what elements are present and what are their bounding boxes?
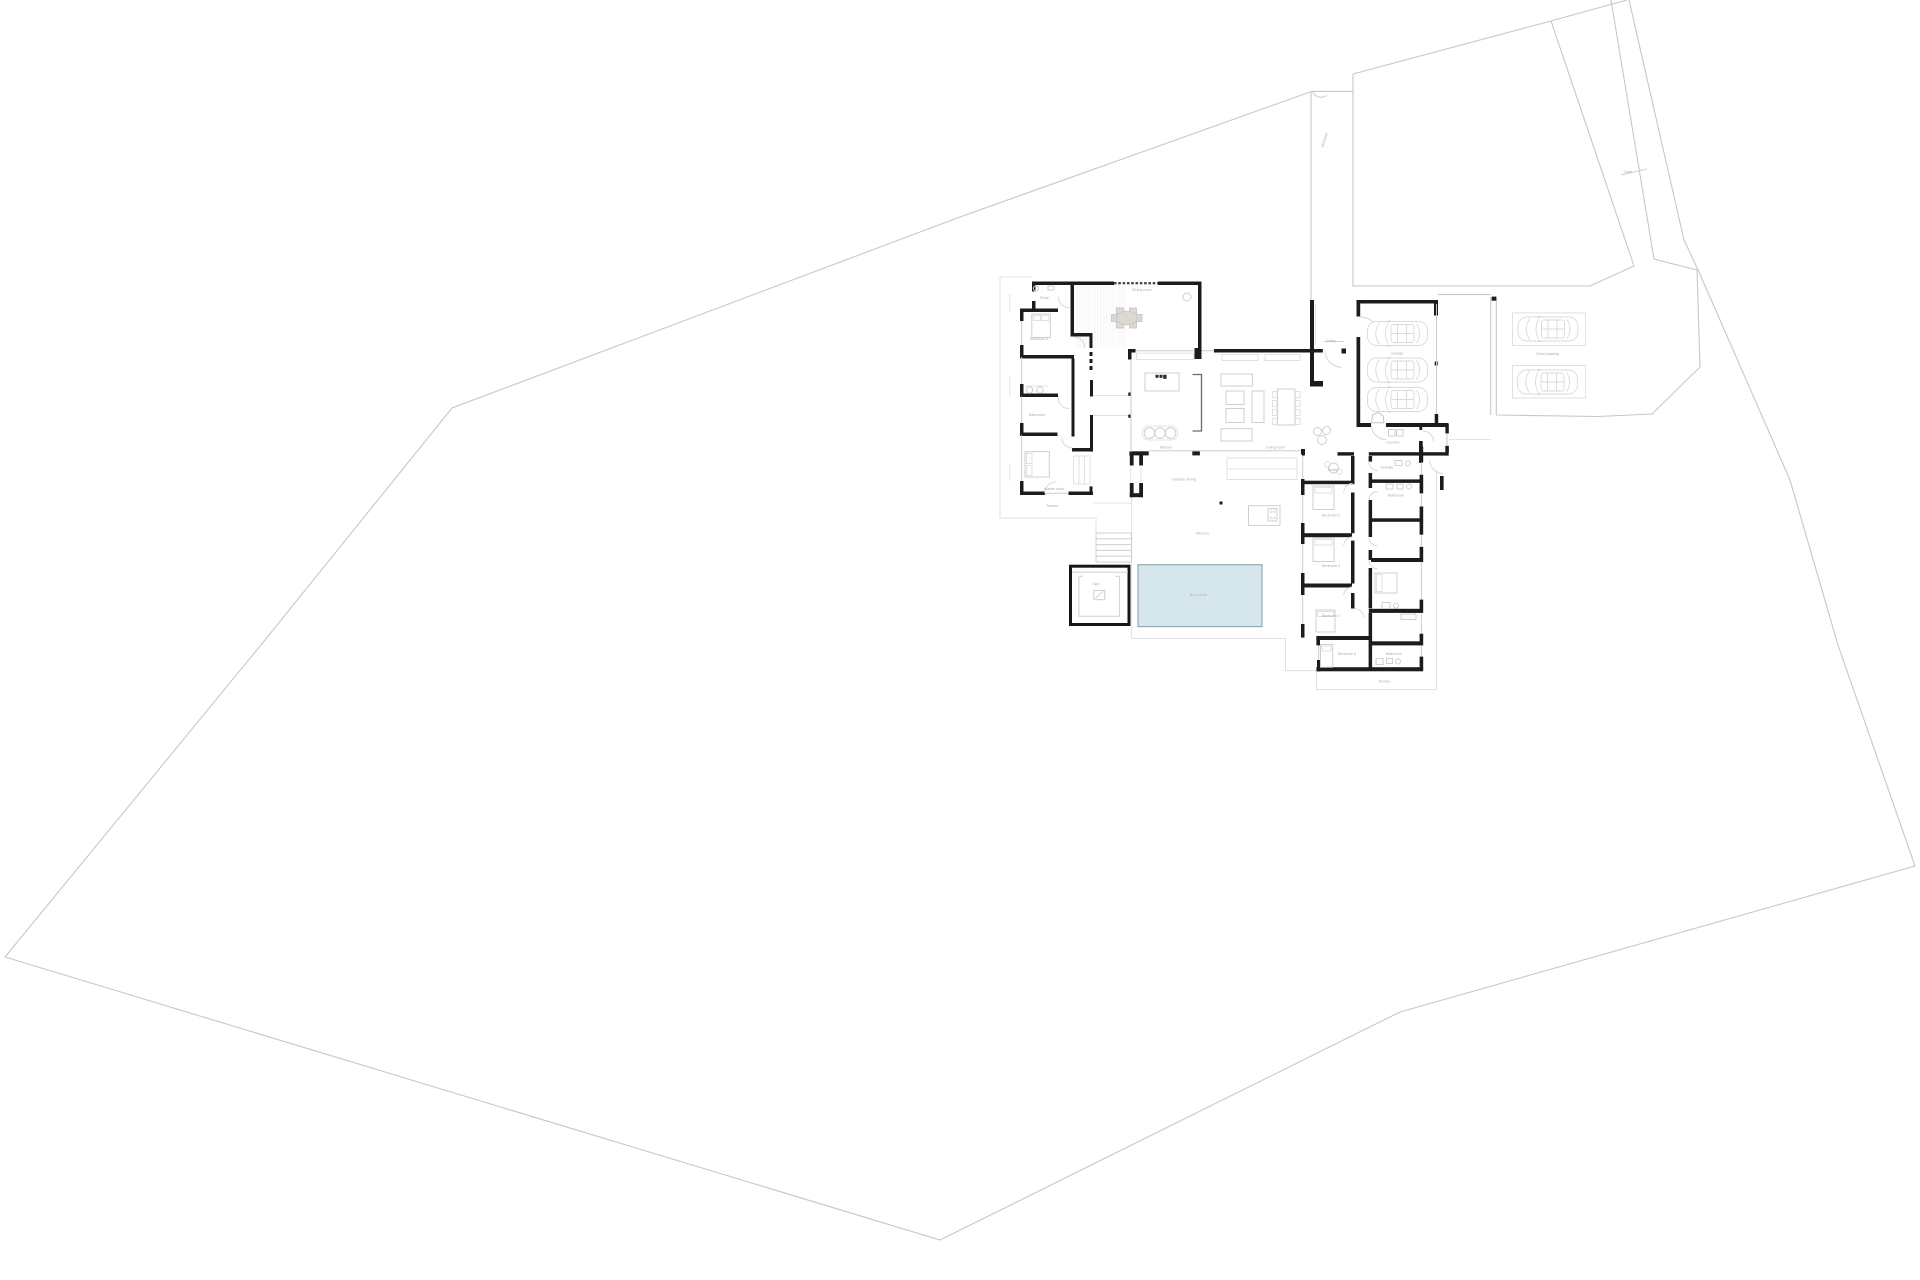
svg-text:Kitchen: Kitchen bbox=[1160, 446, 1172, 450]
svg-text:Ensuite: Ensuite bbox=[1381, 466, 1393, 470]
svg-text:Living room: Living room bbox=[1266, 446, 1285, 450]
svg-text:Terrace: Terrace bbox=[1378, 680, 1390, 684]
svg-text:Bedroom 3: Bedroom 3 bbox=[1322, 564, 1340, 568]
svg-text:Robe: Robe bbox=[1040, 296, 1049, 300]
svg-text:Entry: Entry bbox=[1327, 339, 1336, 343]
svg-text:Bathroom: Bathroom bbox=[1029, 413, 1045, 417]
svg-text:Bedroom 4: Bedroom 4 bbox=[1322, 614, 1340, 618]
svg-text:Outdoor dining: Outdoor dining bbox=[1172, 478, 1196, 482]
svg-text:Bathroom: Bathroom bbox=[1388, 494, 1404, 498]
svg-text:Laundry: Laundry bbox=[1386, 441, 1399, 445]
svg-text:Bedroom 5: Bedroom 5 bbox=[1030, 337, 1048, 341]
svg-text:Garage: Garage bbox=[1391, 352, 1403, 356]
svg-text:Lane: Lane bbox=[1624, 170, 1632, 174]
svg-text:Alfresco: Alfresco bbox=[1196, 532, 1209, 536]
svg-text:Terrace: Terrace bbox=[1046, 504, 1058, 508]
svg-text:Bedroom 2: Bedroom 2 bbox=[1322, 514, 1340, 518]
svg-text:Dining room: Dining room bbox=[1132, 288, 1152, 292]
svg-text:Bathroom: Bathroom bbox=[1386, 652, 1402, 656]
svg-text:Master suite: Master suite bbox=[1044, 487, 1064, 491]
svg-text:Spa: Spa bbox=[1093, 582, 1101, 586]
svg-text:8.0 x 4.0m: 8.0 x 4.0m bbox=[1190, 593, 1207, 597]
svg-text:Study: Study bbox=[1328, 468, 1338, 472]
svg-text:Bedroom 6: Bedroom 6 bbox=[1338, 652, 1356, 656]
svg-text:Guest parking: Guest parking bbox=[1536, 352, 1559, 356]
